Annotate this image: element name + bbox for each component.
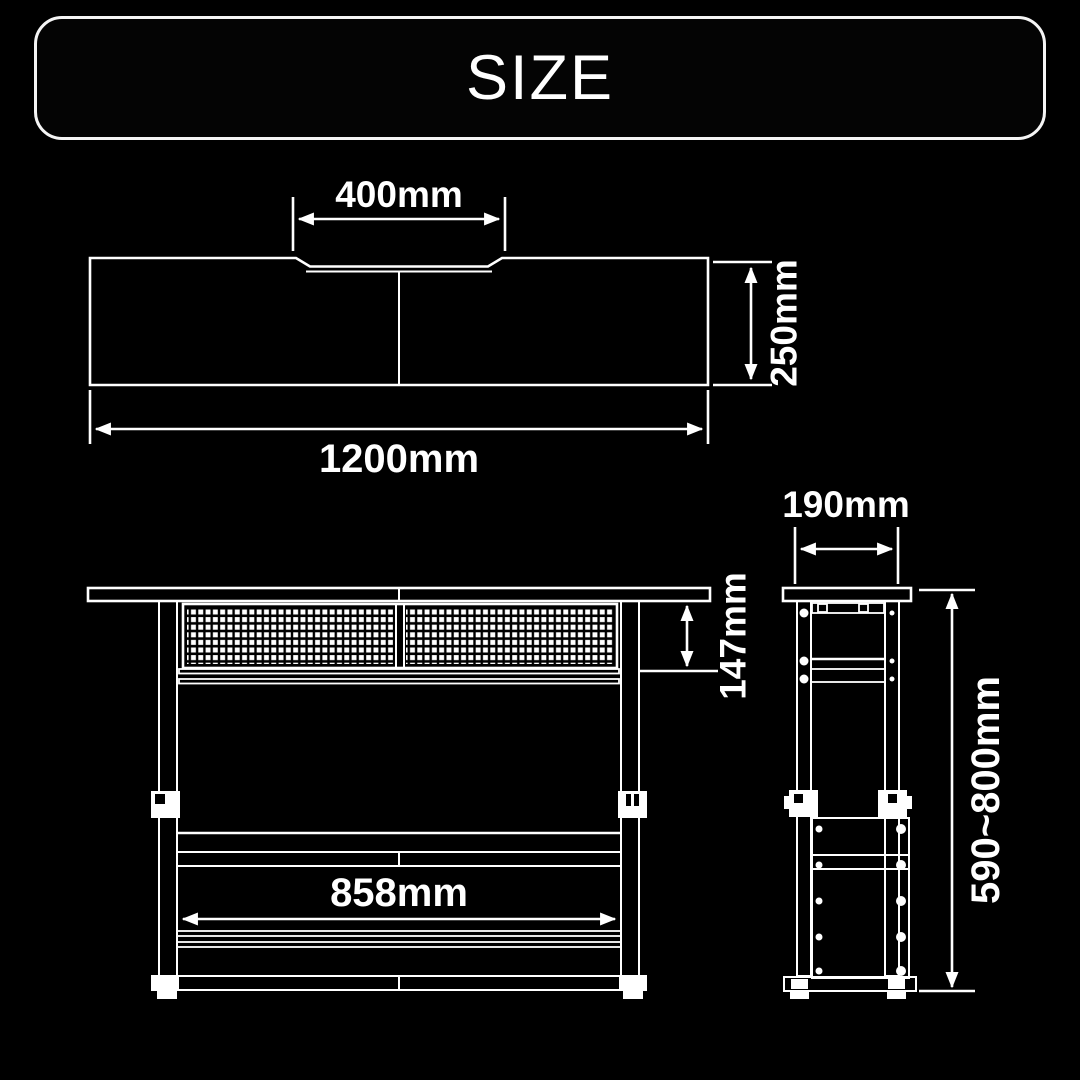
dimension-frame-depth: 190mm [782,484,910,584]
dim-label-depth: 250mm [764,259,805,387]
dim-label-frame-depth: 190mm [782,484,910,525]
front-right-clamp [618,791,647,818]
front-left-clamp [151,791,180,818]
front-left-foot [157,990,177,999]
dimension-depth: 250mm [713,259,805,387]
dimension-height-range: 590~800mm [919,590,1008,991]
side-rear-clamp [878,790,912,817]
dimension-total-width: 1200mm [90,390,708,481]
front-view: 858mm 147mm [88,572,754,999]
front-lower-rail-2 [177,942,621,947]
side-base [784,977,916,999]
dim-label-total-width: 1200mm [319,437,479,481]
dimension-mesh-height: 147mm [640,572,754,700]
front-base [152,976,646,999]
dim-label-inner-width: 858mm [330,871,468,915]
front-upper-rail-2 [179,679,619,684]
front-lower-rail [177,931,621,936]
side-rear-leg [885,601,899,976]
mesh-panel [183,604,617,668]
side-front-clamp [784,790,818,817]
front-right-foot [623,990,643,999]
front-left-leg [159,601,177,976]
side-rear-foot [887,991,906,999]
dim-label-mesh-height: 147mm [713,572,754,700]
top-view: 400mm 1200mm 250mm [90,174,805,481]
side-view: 190mm 590~800mm [782,484,1008,999]
side-upper-rail-band [811,669,885,682]
dimension-inner-width: 858mm [183,871,615,919]
side-front-foot [790,991,809,999]
side-lower-panel [812,818,909,978]
front-right-leg [621,601,639,976]
dim-label-height-range: 590~800mm [964,676,1008,904]
dimension-notch-width: 400mm [293,174,505,251]
side-top-bracket [812,603,884,613]
front-upper-rail [179,669,619,674]
dim-label-notch-width: 400mm [335,174,463,215]
dimension-drawing: 400mm 1200mm 250mm [0,0,1080,1080]
side-tabletop [783,588,911,601]
size-diagram-page: SIZE 400mm [0,0,1080,1080]
